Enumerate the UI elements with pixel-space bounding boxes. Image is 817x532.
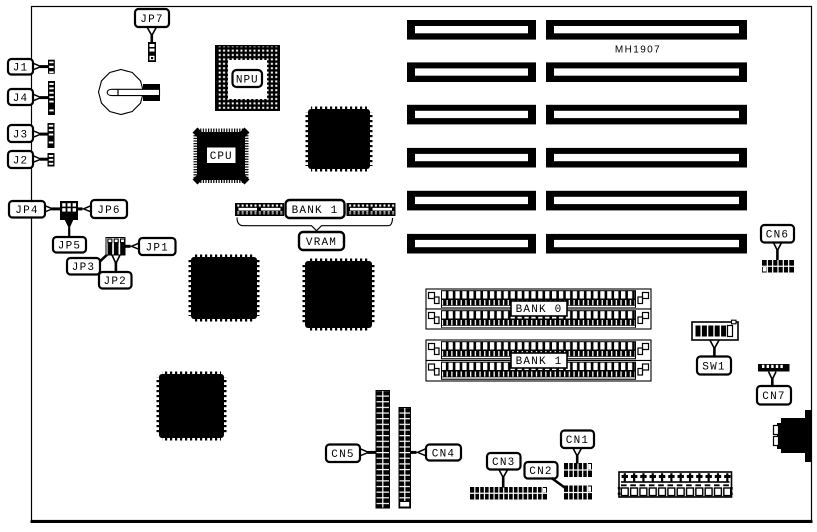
svg-text:J3: J3: [13, 129, 29, 141]
svg-text:CN6: CN6: [766, 230, 789, 242]
svg-text:CN5: CN5: [331, 449, 354, 461]
svg-text:JP7: JP7: [140, 14, 163, 26]
svg-text:CN2: CN2: [529, 466, 552, 478]
svg-text:BANK 1: BANK 1: [516, 356, 563, 368]
svg-text:MH1907: MH1907: [615, 45, 661, 56]
svg-text:BANK 0: BANK 0: [516, 304, 563, 316]
svg-text:SW1: SW1: [702, 361, 725, 373]
svg-text:CN3: CN3: [492, 457, 515, 469]
svg-text:CN7: CN7: [762, 391, 785, 403]
svg-text:JP5: JP5: [58, 241, 81, 253]
svg-text:BANK 1: BANK 1: [292, 205, 339, 217]
svg-text:CN1: CN1: [566, 435, 589, 447]
svg-text:J1: J1: [13, 63, 29, 75]
svg-text:CPU: CPU: [210, 151, 233, 163]
svg-text:JP2: JP2: [104, 276, 127, 288]
svg-text:J4: J4: [13, 93, 29, 105]
svg-text:J2: J2: [13, 155, 29, 167]
svg-text:JP3: JP3: [72, 262, 95, 274]
svg-text:JP4: JP4: [15, 205, 38, 217]
svg-text:NPU: NPU: [236, 74, 259, 86]
svg-text:JP1: JP1: [146, 242, 169, 254]
svg-text:VRAM: VRAM: [306, 237, 337, 249]
svg-text:JP6: JP6: [97, 205, 120, 217]
svg-text:CN4: CN4: [432, 448, 455, 460]
